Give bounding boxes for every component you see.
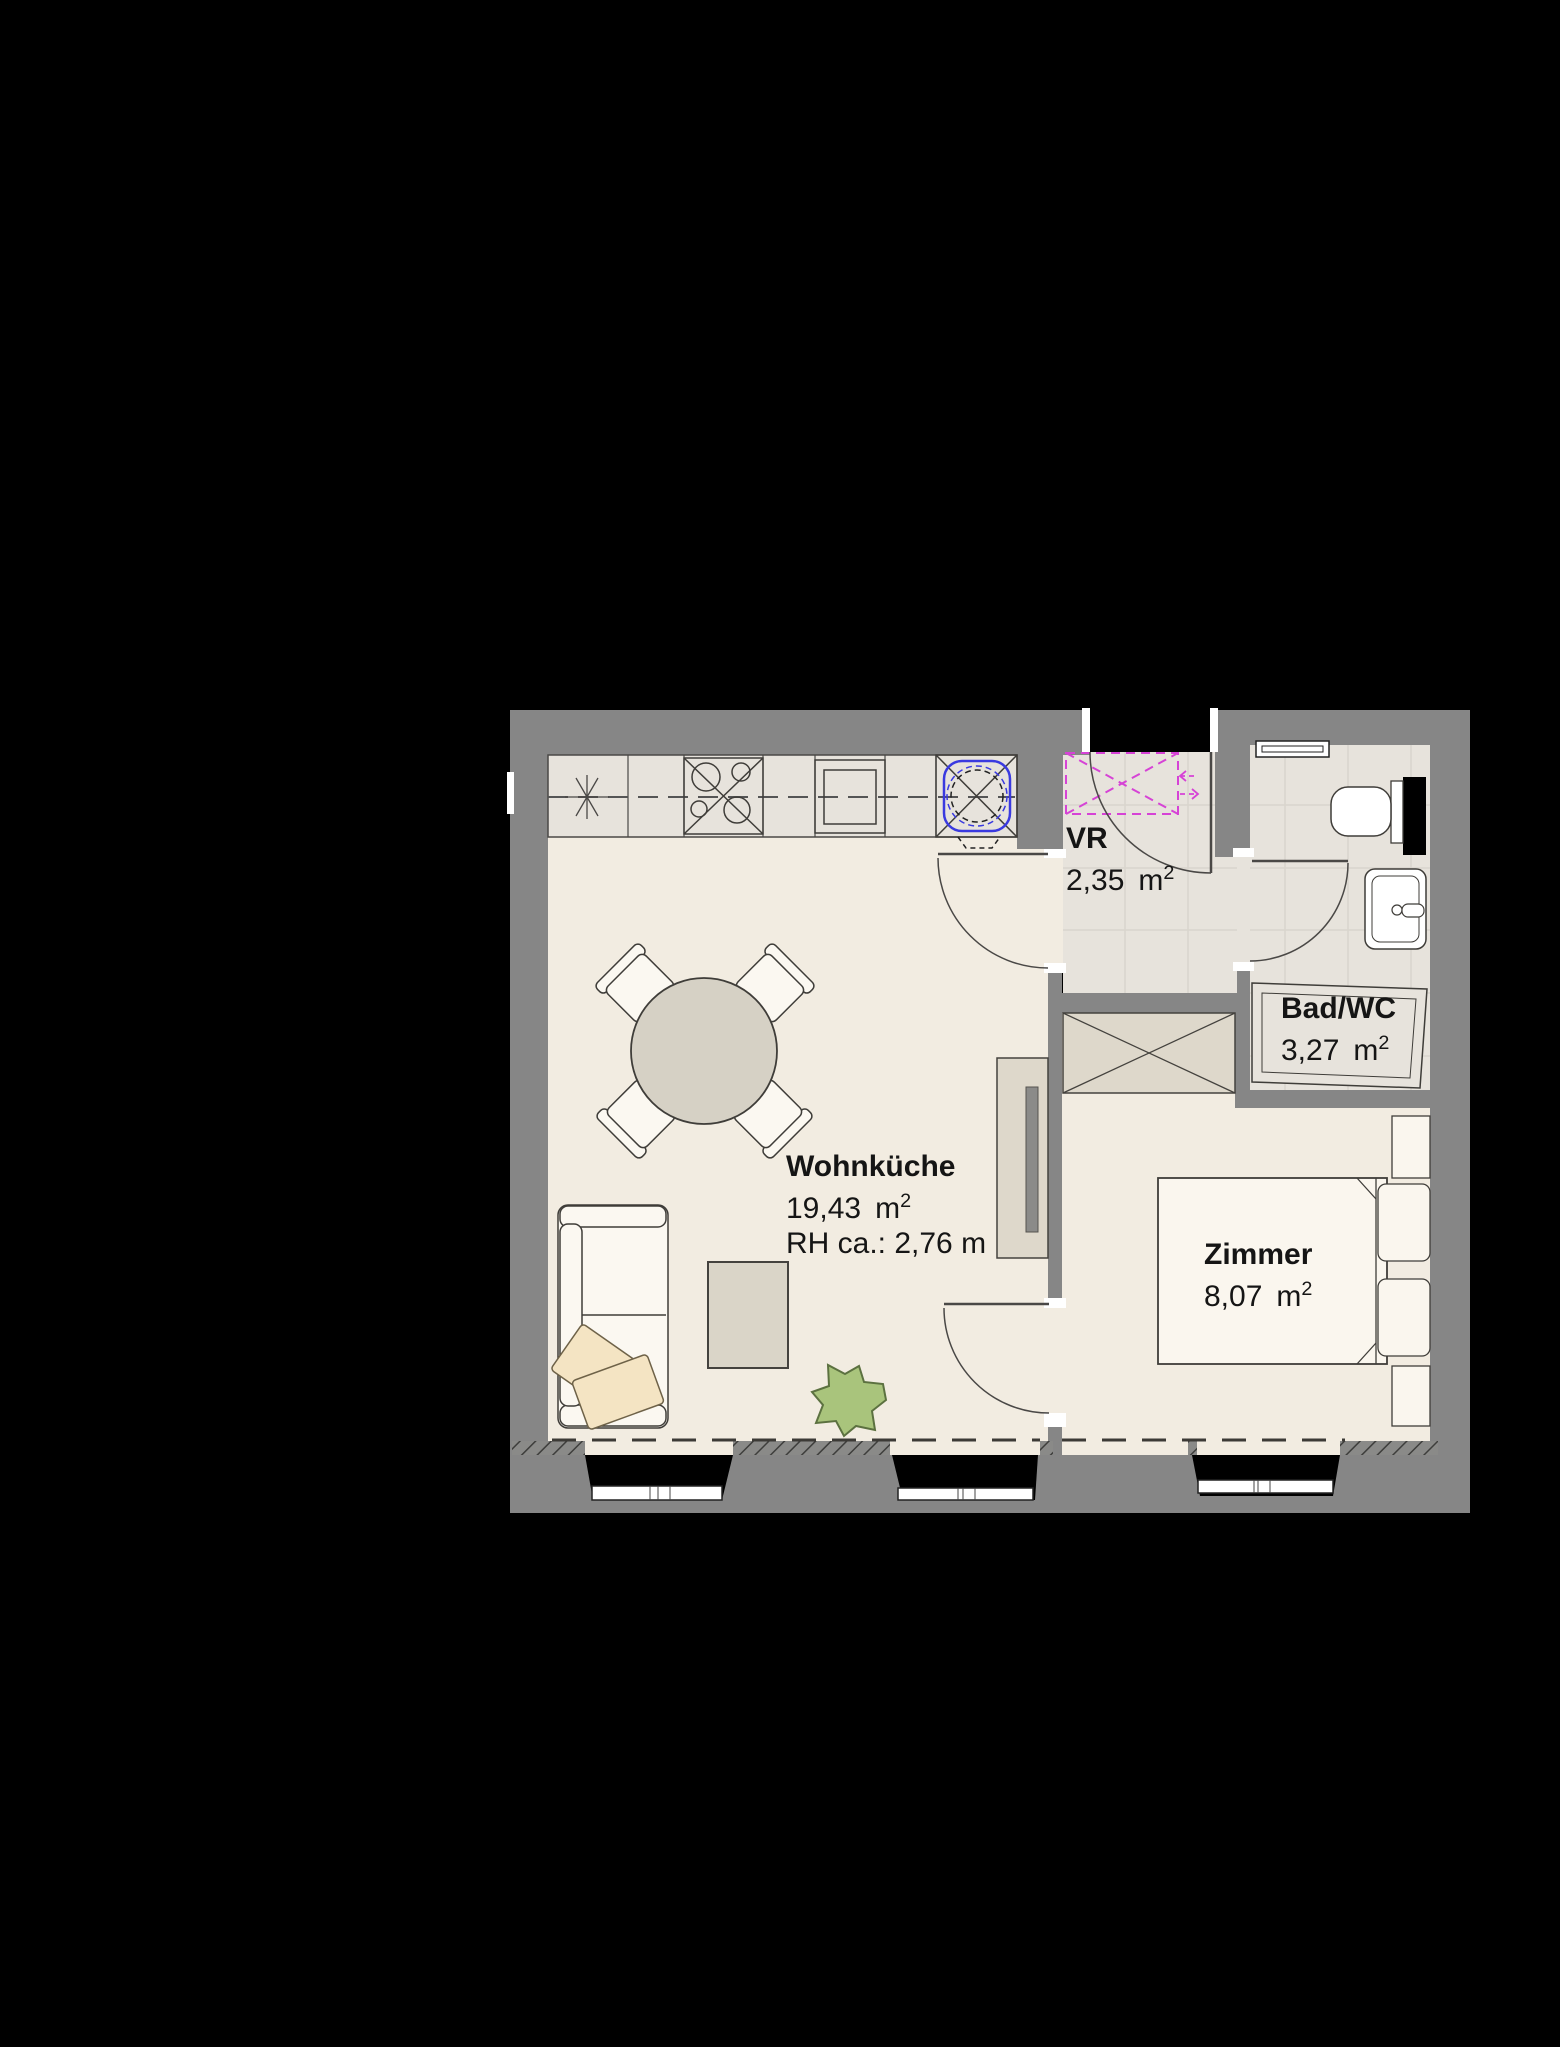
window-frame [592, 1486, 722, 1500]
tv-sideboard-icon [997, 1058, 1048, 1258]
entrance-opening [1090, 710, 1210, 752]
room-name: Wohnküche [786, 1149, 986, 1184]
coffee-table-icon [708, 1262, 788, 1368]
wall-alcove-bad [1235, 1013, 1250, 1090]
wall-bad-zimmer [1235, 1090, 1430, 1108]
room-label-bad-wc: Bad/WC 3,27m2 [1281, 991, 1396, 1068]
vr-floor [1215, 857, 1237, 993]
tv-icon [1026, 1087, 1038, 1232]
wall-joint-mark [507, 772, 514, 814]
wall-wohnkueche-zimmer [1048, 973, 1062, 1298]
washbasin-icon [1365, 869, 1426, 949]
doorway-floor [1048, 858, 1063, 963]
room-name: VR [1066, 821, 1174, 856]
room-name: Bad/WC [1281, 991, 1396, 1026]
room-label-vr: VR 2,35m2 [1066, 821, 1174, 898]
bathroom-window-icon [1256, 741, 1329, 757]
room-name: Zimmer [1204, 1237, 1312, 1272]
room-area: 8,07m2 [1204, 1272, 1312, 1314]
dining-table-icon [631, 978, 777, 1124]
wall-left [510, 755, 548, 1455]
wall-vr-zimmer [1048, 993, 1250, 1013]
window-frame [1198, 1480, 1333, 1493]
nightstand-icon [1392, 1116, 1430, 1178]
wall-right [1430, 710, 1470, 1513]
wall-top-left [510, 710, 1090, 755]
wardrobe-icon [1063, 1013, 1235, 1093]
wall-vr-bad [1215, 745, 1250, 857]
room-height-note: RH ca.: 2,76 m [786, 1226, 986, 1261]
wall-kitchen-vr [1017, 755, 1063, 849]
room-label-zimmer: Zimmer 8,07m2 [1204, 1237, 1312, 1314]
kitchen-counter [548, 755, 1017, 848]
room-area: 19,43m2 [786, 1184, 986, 1226]
room-area: 2,35m2 [1066, 856, 1174, 898]
bad-doorway-floor [1237, 857, 1250, 962]
nightstand-icon [1392, 1366, 1430, 1426]
doorway-floor [1048, 1308, 1062, 1413]
bed-pillow-icon [1378, 1184, 1430, 1261]
floor-plan-page: Wohnküche 19,43m2 RH ca.: 2,76 m VR 2,35… [0, 0, 1560, 2047]
room-label-wohnkueche: Wohnküche 19,43m2 RH ca.: 2,76 m [786, 1149, 986, 1261]
window-frame [898, 1488, 1033, 1500]
bed-pillow-icon [1378, 1279, 1430, 1356]
room-area: 3,27m2 [1281, 1026, 1396, 1068]
wall-vr-bad [1237, 971, 1250, 993]
